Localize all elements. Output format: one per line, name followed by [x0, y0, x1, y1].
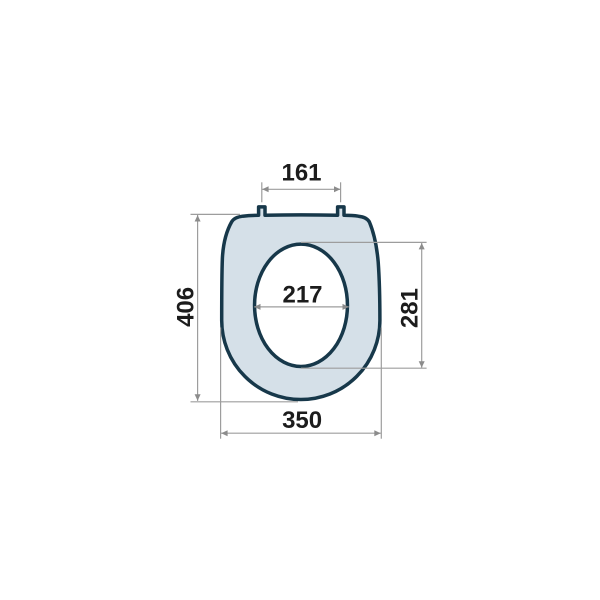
svg-text:161: 161 [281, 160, 321, 187]
svg-text:217: 217 [282, 282, 322, 309]
svg-text:281: 281 [397, 288, 424, 328]
svg-text:350: 350 [282, 407, 322, 434]
svg-text:406: 406 [172, 287, 199, 327]
